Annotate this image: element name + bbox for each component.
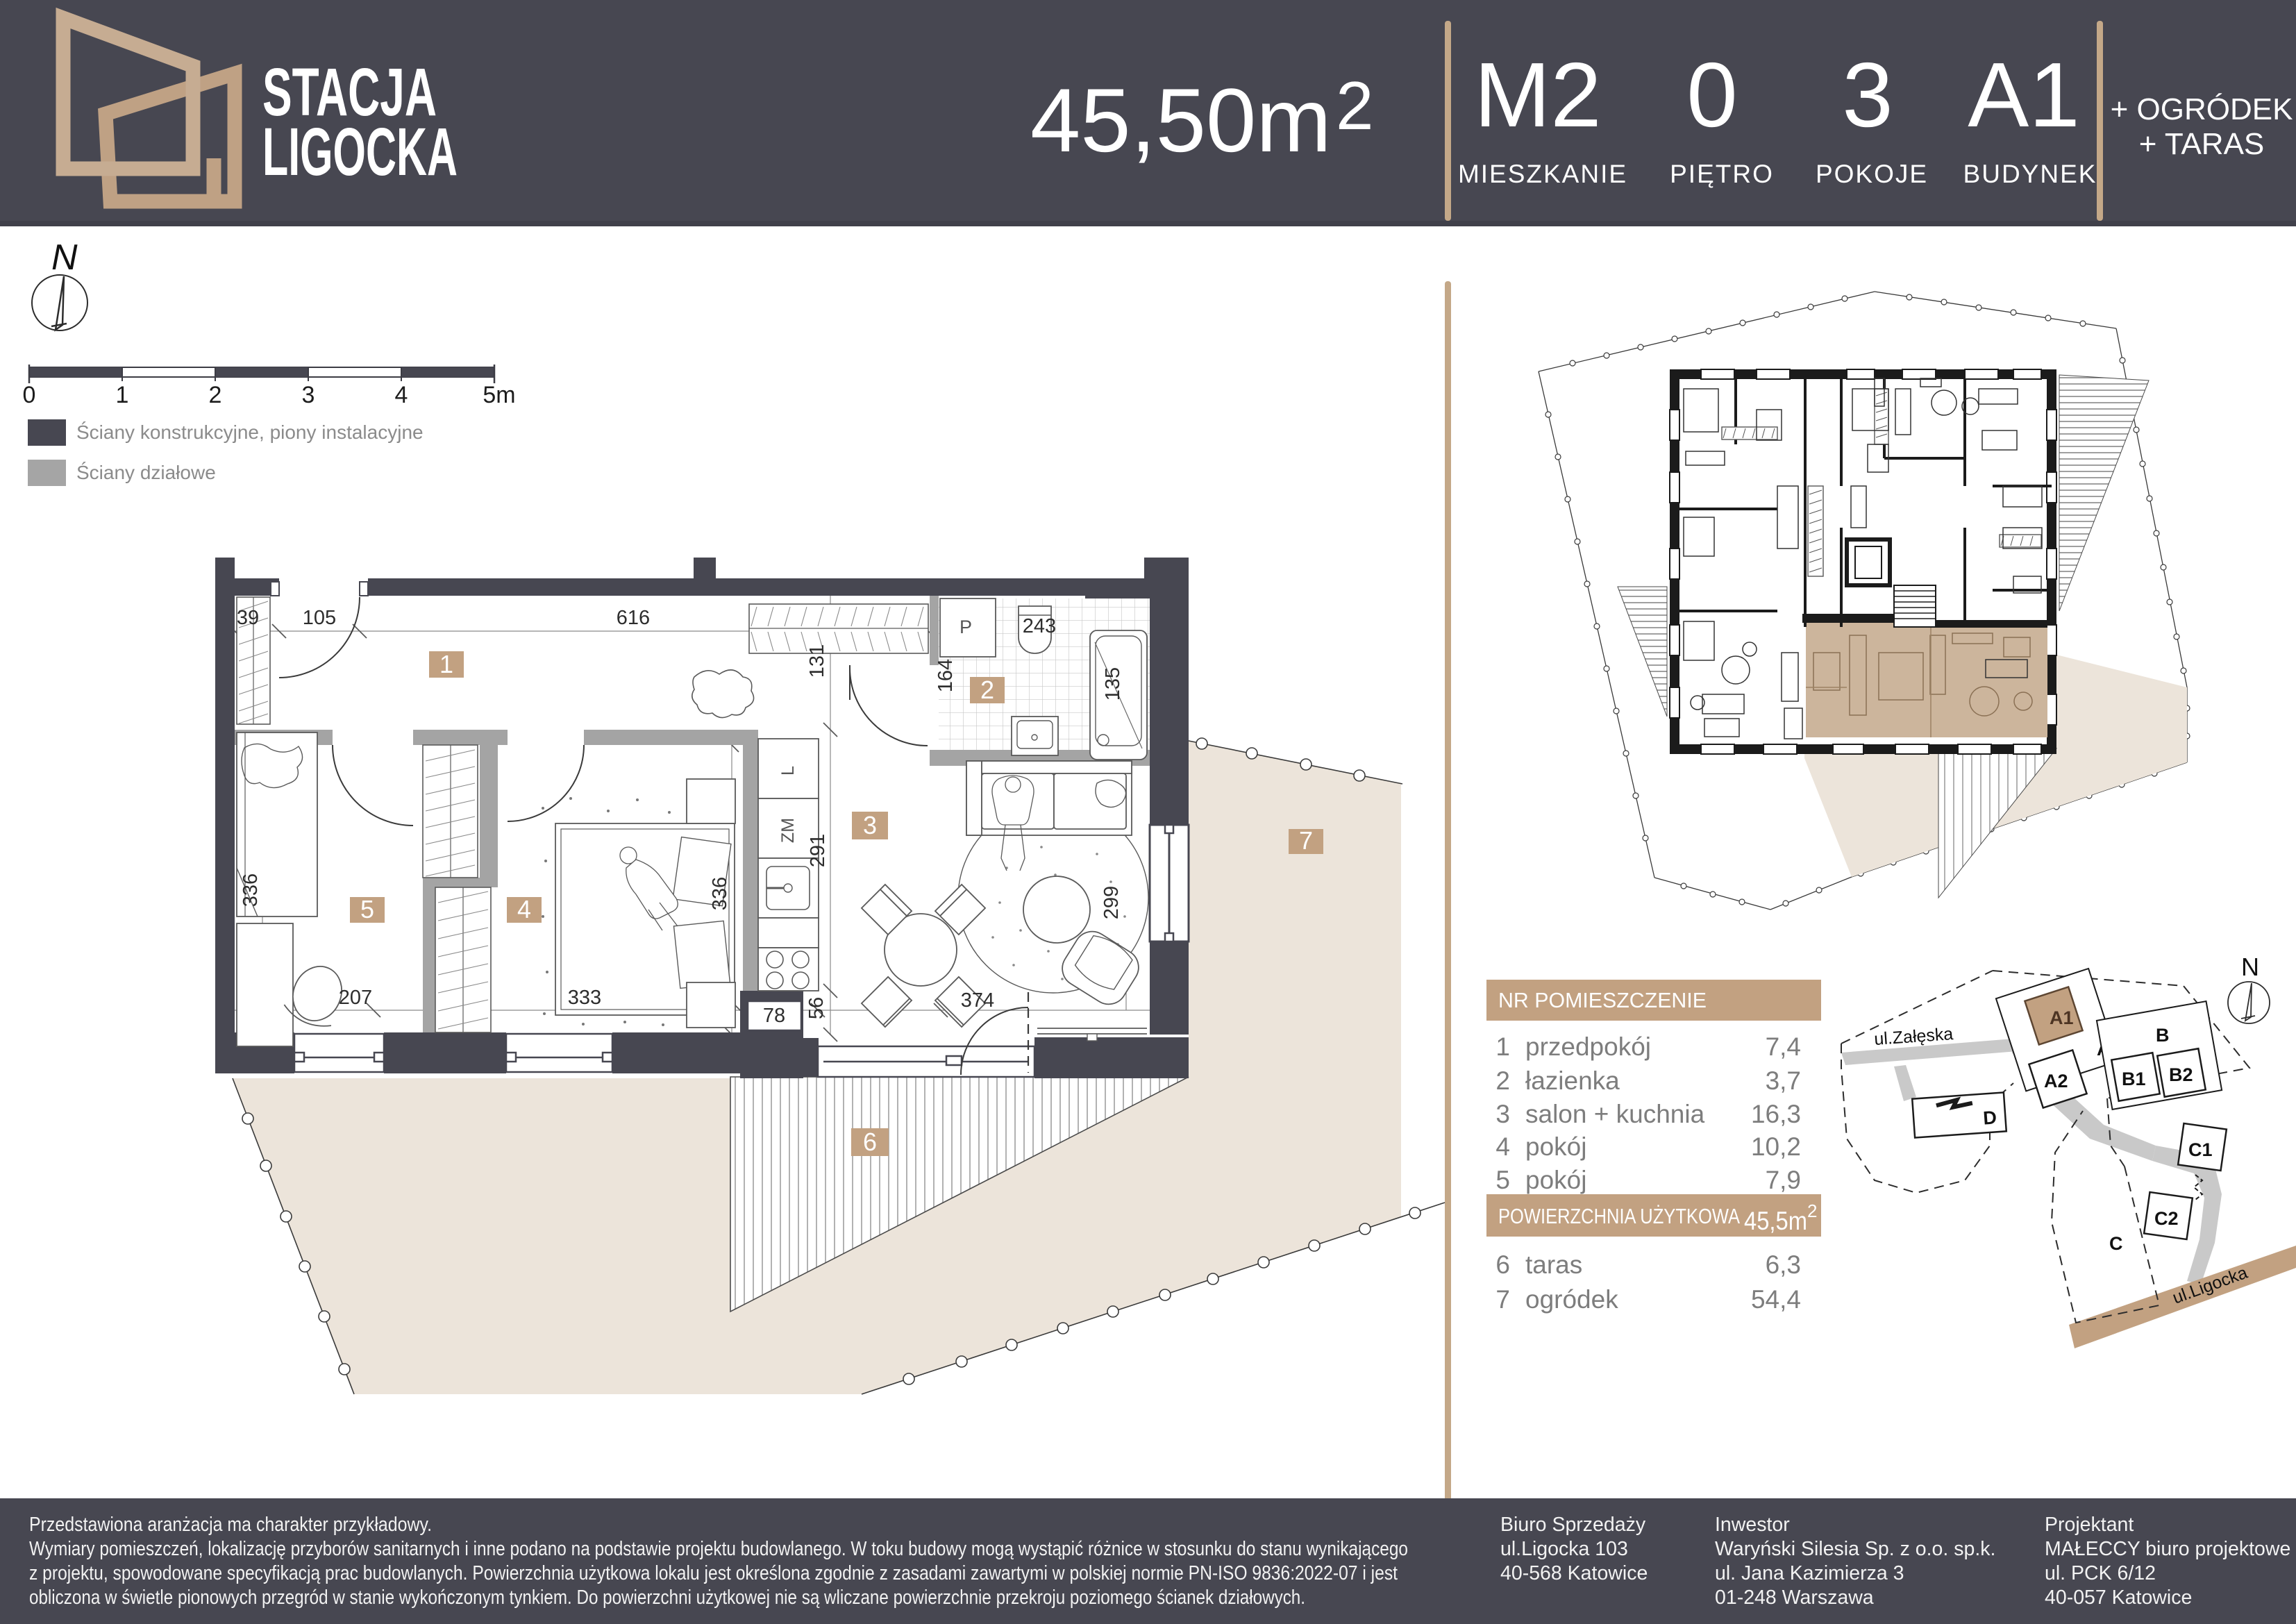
- svg-text:POKOJE: POKOJE: [1816, 160, 1928, 188]
- svg-text:0: 0: [23, 382, 36, 408]
- svg-text:Waryński Silesia Sp. z o.o. sp: Waryński Silesia Sp. z o.o. sp.k.: [1715, 1538, 1995, 1560]
- svg-text:przedpokój: przedpokój: [1525, 1032, 1651, 1061]
- svg-text:z projektu, spowodowane specyf: z projektu, spowodowane specyfikacją pra…: [29, 1562, 1398, 1584]
- svg-text:243: 243: [1023, 615, 1056, 637]
- svg-text:M2: M2: [1474, 44, 1601, 146]
- svg-text:336: 336: [709, 877, 731, 910]
- svg-text:A2: A2: [2044, 1071, 2068, 1091]
- svg-text:NR POMIESZCZENIE: NR POMIESZCZENIE: [1498, 988, 1707, 1012]
- svg-text:2: 2: [1807, 1200, 1817, 1221]
- svg-text:78: 78: [763, 1005, 785, 1027]
- svg-text:45,50m: 45,50m: [1030, 69, 1332, 171]
- svg-text:4: 4: [517, 895, 531, 923]
- svg-text:374: 374: [961, 989, 994, 1012]
- svg-text:BUDYNEK: BUDYNEK: [1963, 160, 2097, 188]
- svg-text:3: 3: [1495, 1100, 1510, 1128]
- svg-text:pokój: pokój: [1525, 1132, 1586, 1161]
- svg-text:299: 299: [1100, 886, 1123, 919]
- svg-text:+ TARAS: + TARAS: [2139, 127, 2265, 161]
- svg-text:7: 7: [1299, 826, 1313, 855]
- svg-text:ZM: ZM: [778, 818, 798, 843]
- svg-text:ogródek: ogródek: [1525, 1285, 1618, 1314]
- svg-text:C: C: [2109, 1233, 2123, 1254]
- svg-text:1: 1: [439, 650, 453, 678]
- svg-text:C1: C1: [2188, 1139, 2213, 1160]
- svg-text:54,4: 54,4: [1751, 1285, 1801, 1314]
- svg-text:ul. Jana Kazimierza 3: ul. Jana Kazimierza 3: [1715, 1562, 1904, 1584]
- svg-text:01-248 Warszawa: 01-248 Warszawa: [1715, 1587, 1874, 1609]
- svg-text:10,2: 10,2: [1751, 1132, 1801, 1161]
- svg-text:MAŁECCY biuro projektowe: MAŁECCY biuro projektowe: [2045, 1538, 2290, 1560]
- svg-text:7,4: 7,4: [1766, 1032, 1801, 1061]
- svg-text:3: 3: [863, 811, 877, 839]
- svg-text:6,3: 6,3: [1766, 1250, 1801, 1279]
- svg-text:6: 6: [1495, 1250, 1510, 1279]
- svg-text:2: 2: [209, 382, 222, 408]
- svg-text:3: 3: [1842, 44, 1893, 146]
- svg-text:4: 4: [1495, 1132, 1510, 1161]
- svg-text:7,9: 7,9: [1766, 1166, 1801, 1194]
- svg-text:3,7: 3,7: [1766, 1066, 1801, 1095]
- svg-text:40-057 Katowice: 40-057 Katowice: [2045, 1587, 2192, 1609]
- svg-text:5: 5: [1495, 1166, 1510, 1194]
- svg-text:Projektant: Projektant: [2045, 1514, 2134, 1536]
- svg-text:45,5m: 45,5m: [1744, 1207, 1807, 1235]
- svg-text:16,3: 16,3: [1751, 1100, 1801, 1128]
- svg-text:2: 2: [1495, 1066, 1510, 1095]
- svg-text:Biuro Sprzedaży: Biuro Sprzedaży: [1500, 1514, 1646, 1536]
- svg-text:4: 4: [395, 382, 408, 408]
- svg-text:135: 135: [1102, 667, 1124, 701]
- svg-text:ul. PCK 6/12: ul. PCK 6/12: [2045, 1562, 2156, 1584]
- svg-text:105: 105: [303, 607, 336, 629]
- svg-text:łazienka: łazienka: [1525, 1066, 1620, 1095]
- svg-text:B: B: [2156, 1025, 2170, 1046]
- svg-text:pokój: pokój: [1525, 1166, 1586, 1194]
- svg-text:56: 56: [805, 997, 828, 1019]
- svg-text:L: L: [778, 766, 798, 776]
- svg-text:0: 0: [1686, 44, 1737, 146]
- svg-text:333: 333: [568, 987, 601, 1009]
- svg-text:40-568 Katowice: 40-568 Katowice: [1500, 1562, 1648, 1584]
- svg-text:7: 7: [1495, 1285, 1510, 1314]
- svg-text:B2: B2: [2169, 1064, 2193, 1085]
- svg-text:POWIERZCHNIA UŻYTKOWA: POWIERZCHNIA UŻYTKOWA: [1498, 1204, 1740, 1228]
- svg-text:5: 5: [360, 895, 374, 923]
- svg-text:164: 164: [935, 659, 957, 692]
- svg-text:131: 131: [806, 644, 828, 678]
- svg-text:5m: 5m: [483, 382, 515, 408]
- svg-text:1: 1: [1495, 1032, 1510, 1061]
- svg-text:D: D: [1982, 1107, 1997, 1128]
- svg-text:Ściany działowe: Ściany działowe: [76, 461, 216, 483]
- svg-text:2: 2: [1336, 67, 1374, 144]
- svg-text:P: P: [960, 617, 972, 637]
- svg-text:39: 39: [237, 607, 259, 629]
- svg-text:Ściany konstrukcyjne, piony in: Ściany konstrukcyjne, piony instalacyjne: [76, 421, 424, 443]
- svg-text:1: 1: [116, 382, 129, 408]
- svg-text:ul.Ligocka 103: ul.Ligocka 103: [1500, 1538, 1628, 1560]
- svg-text:taras: taras: [1525, 1250, 1582, 1279]
- svg-text:LIGOCKA: LIGOCKA: [262, 114, 458, 190]
- svg-text:A1: A1: [2050, 1007, 2074, 1028]
- svg-text:336: 336: [240, 873, 262, 907]
- svg-text:207: 207: [339, 987, 372, 1009]
- svg-text:2: 2: [980, 676, 994, 704]
- svg-text:salon + kuchnia: salon + kuchnia: [1525, 1100, 1705, 1128]
- svg-text:N: N: [51, 237, 78, 278]
- svg-text:B1: B1: [2122, 1069, 2146, 1089]
- svg-text:Wymiary pomieszczeń, lokalizac: Wymiary pomieszczeń, lokalizację przybor…: [29, 1538, 1408, 1560]
- svg-text:3: 3: [302, 382, 315, 408]
- svg-text:obliczona w świetle pionowych: obliczona w świetle pionowych przegród w…: [29, 1587, 1305, 1609]
- svg-text:N: N: [2241, 953, 2259, 981]
- svg-text:C2: C2: [2154, 1208, 2179, 1229]
- svg-text:6: 6: [863, 1128, 877, 1156]
- svg-text:Przedstawiona aranżacja ma cha: Przedstawiona aranżacja ma charakter prz…: [29, 1514, 432, 1536]
- svg-text:MIESZKANIE: MIESZKANIE: [1458, 160, 1627, 188]
- svg-text:A1: A1: [1968, 44, 2079, 146]
- svg-text:291: 291: [807, 834, 829, 867]
- svg-text:PIĘTRO: PIĘTRO: [1670, 160, 1774, 188]
- svg-text:Inwestor: Inwestor: [1715, 1514, 1790, 1536]
- svg-text:616: 616: [617, 607, 650, 629]
- svg-text:+ OGRÓDEK: + OGRÓDEK: [2111, 92, 2293, 126]
